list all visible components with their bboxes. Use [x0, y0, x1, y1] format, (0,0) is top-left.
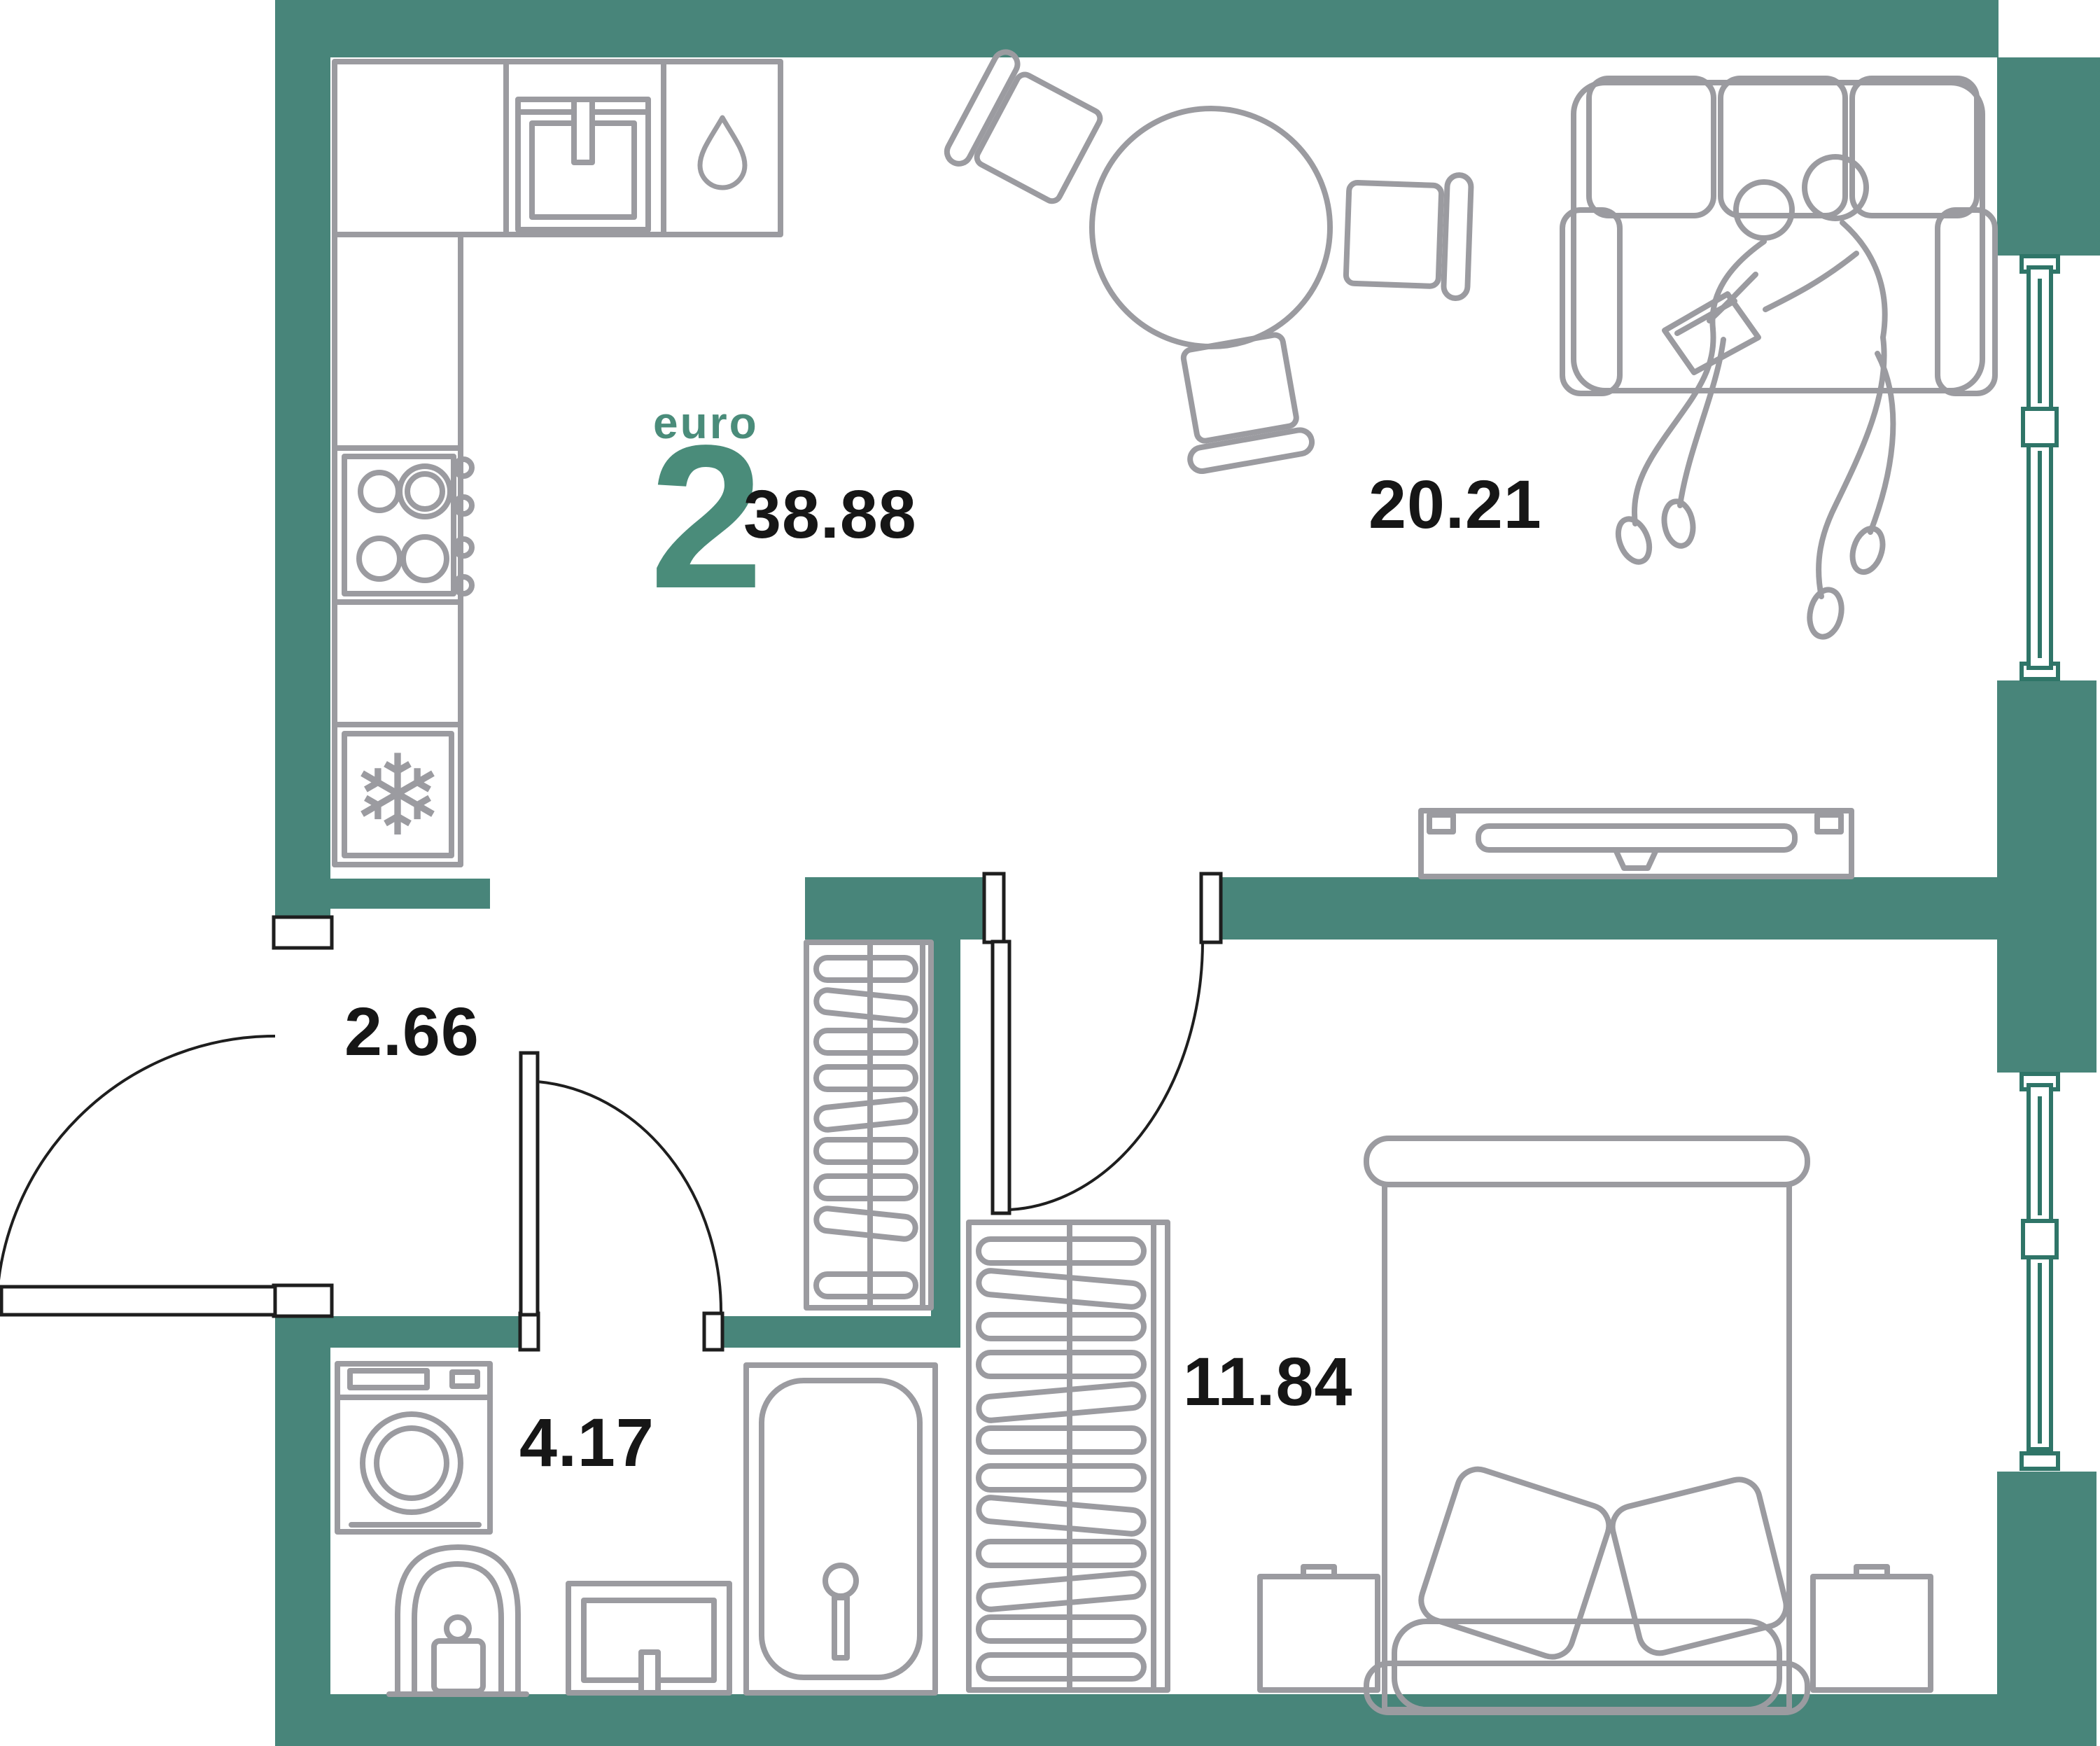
- nightstand: [1260, 1567, 1378, 1690]
- window-living-room: [2022, 256, 2058, 679]
- toilet: [389, 1547, 526, 1694]
- wall-right-b: [1997, 680, 2096, 1073]
- area-bedroom: 11.84: [1183, 1348, 1352, 1416]
- dining-table: [1092, 109, 1330, 347]
- wall-main-divider-left: [805, 877, 984, 940]
- area-living-kitchen: 20.21: [1368, 470, 1542, 538]
- snowflake-icon: ❄: [351, 730, 444, 861]
- floor-plan: ❄: [0, 0, 2100, 1746]
- wall-right-a: [1997, 57, 2100, 256]
- washbasin: [568, 1584, 729, 1693]
- hall-wardrobe: [806, 942, 931, 1308]
- area-hallway: 2.66: [344, 998, 479, 1066]
- wall-bath-top-left: [330, 1316, 521, 1348]
- wall-main-divider-right: [1221, 877, 1998, 940]
- entrance-door: [0, 917, 332, 1316]
- tv-console: [1421, 811, 1851, 877]
- bathroom-door: [520, 1053, 722, 1350]
- wall-wardrobe-side: [931, 940, 960, 1348]
- bedroom-wardrobe: [969, 1222, 1168, 1690]
- walls: [275, 0, 2100, 1746]
- floor-plan-svg: ❄: [0, 0, 2100, 1746]
- wall-right-c: [1997, 1472, 2096, 1694]
- chair: [943, 48, 1108, 214]
- bathtub: [746, 1365, 935, 1693]
- stove: [344, 456, 472, 594]
- bedroom-door: [984, 874, 1221, 1213]
- wall-left-lower: [275, 1316, 330, 1746]
- bed: [1366, 1138, 1807, 1712]
- wall-kitchen-divider: [330, 879, 490, 909]
- area-bathroom: 4.17: [519, 1409, 654, 1476]
- doors: [0, 874, 1221, 1350]
- window-bedroom: [2022, 1074, 2058, 1469]
- kitchen-sink: [518, 99, 648, 230]
- chair: [1171, 332, 1314, 473]
- fridge: ❄: [344, 730, 451, 861]
- nightstand: [1813, 1567, 1931, 1690]
- total-area-label: 38.88: [743, 480, 917, 548]
- wall-left-upper: [275, 57, 330, 917]
- wall-bottom: [275, 1694, 2096, 1746]
- water-drop-icon: [700, 118, 745, 188]
- washing-machine: [337, 1364, 490, 1532]
- wall-bath-top-right: [722, 1316, 960, 1348]
- wall-top: [275, 0, 1998, 57]
- people-on-sofa: [1612, 157, 1893, 640]
- chair: [1345, 172, 1471, 299]
